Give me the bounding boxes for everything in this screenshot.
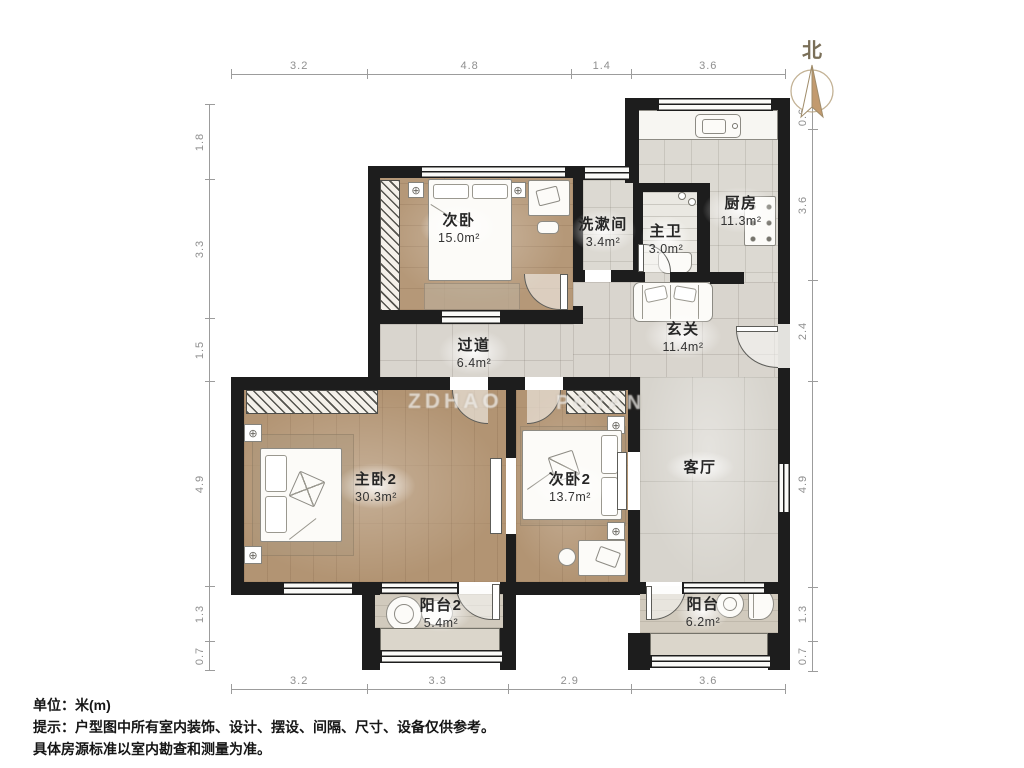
lamp-glyph: ⊕	[611, 525, 620, 538]
wall-segment	[368, 166, 380, 382]
room-label-master-bath: 主卫 3.0m²	[641, 216, 691, 260]
dim-label: 3.2	[290, 675, 308, 687]
room-name: 主卫	[649, 220, 683, 241]
door-leaf	[560, 274, 568, 310]
bedroom2-window	[420, 166, 567, 178]
wall-segment	[573, 270, 585, 282]
north-indicator: 北	[786, 34, 838, 125]
dim-segment: 1.4	[572, 61, 632, 75]
entry-door-leaf	[736, 326, 778, 332]
wall-segment	[500, 582, 516, 594]
dim-segment: 1.3	[812, 587, 824, 642]
dim-label: 3.6	[699, 60, 717, 72]
dim-label: 0.7	[194, 647, 206, 665]
balcony-window	[650, 655, 772, 668]
kitchen-window	[657, 98, 773, 111]
entry-door-gap	[778, 324, 790, 368]
watermark-text: POYAN	[556, 392, 645, 415]
chair-icon	[558, 548, 576, 566]
dim-segment: 3.3	[367, 676, 508, 690]
room-name: 过道	[457, 334, 491, 355]
wall-segment	[762, 582, 790, 594]
dim-label: 3.3	[429, 675, 447, 687]
dim-segment: 4.8	[367, 61, 572, 75]
laptop-icon	[595, 546, 621, 569]
room-label-kitchen: 厨房 11.3m²	[703, 187, 780, 233]
pillow-icon	[265, 455, 287, 492]
nightstand-lamp-icon: ⊕	[510, 182, 526, 198]
wall-segment	[573, 306, 583, 324]
kitchen-sink-icon	[695, 114, 741, 138]
wall-segment	[498, 310, 573, 324]
wall-segment	[362, 628, 380, 670]
dim-segment: 0.7	[812, 642, 824, 671]
stool-icon	[537, 221, 559, 234]
watermark-text: ZDHAO	[408, 390, 503, 414]
wall-segment	[633, 272, 645, 282]
room-name: 阳台	[686, 593, 720, 614]
wall-segment	[670, 272, 710, 282]
door-leaf	[646, 586, 652, 620]
wardrobe-icon	[380, 180, 400, 312]
floor-plan-page: ⊕ ⊕ ⊕ ⊕ ⊕ ⊕	[0, 0, 1024, 768]
balcony-parapet	[650, 633, 768, 657]
disclaimer-line1: 提示：户型图中所有室内装饰、设计、摆设、间隔、尺寸、设备仅供参考。	[33, 716, 495, 738]
dim-segment: 2.4	[812, 280, 824, 381]
room-area: 13.7m²	[549, 490, 592, 504]
room-name: 玄关	[663, 318, 704, 339]
room-label-master-bedroom: 主卧2 30.3m²	[337, 463, 416, 509]
room-area: 30.3m²	[355, 490, 398, 504]
room-name: 次卧	[438, 209, 480, 230]
dim-segment: 3.2	[231, 676, 367, 690]
rug-icon	[424, 283, 520, 310]
wall-segment	[643, 183, 697, 192]
dim-label: 3.3	[194, 240, 206, 258]
room-label-entry: 玄关 11.4m²	[645, 313, 722, 359]
room-area: 6.4m²	[457, 356, 491, 370]
dim-label: 2.9	[561, 675, 579, 687]
dim-label: 1.4	[593, 60, 611, 72]
dimension-top: 3.2 4.8 1.4 3.6	[231, 61, 785, 75]
room-label-hallway: 过道 6.4m²	[439, 329, 509, 375]
wall-segment	[500, 628, 516, 670]
master-bedroom-window	[282, 582, 354, 595]
wall-segment	[710, 272, 744, 284]
sofa-cushion	[644, 285, 668, 303]
door-leaf	[490, 458, 502, 534]
lamp-glyph: ⊕	[248, 427, 257, 440]
dim-segment: 2.9	[508, 676, 632, 690]
hallway-floor-2	[573, 282, 630, 377]
room-area: 6.2m²	[686, 615, 720, 629]
dim-label: 3.6	[797, 196, 809, 214]
dimension-left: 1.8 3.3 1.5 4.9 1.3 0.7	[209, 104, 221, 671]
dim-label: 1.5	[194, 341, 206, 359]
dim-segment: 3.6	[632, 676, 785, 690]
wardrobe-icon	[246, 390, 378, 414]
room-name: 阳台2	[420, 594, 463, 615]
nightstand-lamp-icon: ⊕	[244, 546, 262, 564]
wall-segment	[778, 290, 790, 324]
dimension-bottom: 3.2 3.3 2.9 3.6	[231, 676, 785, 690]
pillow-icon	[265, 496, 287, 533]
faucet-icon	[678, 192, 686, 200]
room-area: 11.3m²	[721, 214, 762, 228]
wall-segment	[778, 510, 790, 582]
dim-label: 4.9	[797, 475, 809, 493]
room-name: 厨房	[721, 192, 762, 213]
lamp-glyph: ⊕	[411, 184, 420, 197]
dim-label: 2.4	[797, 322, 809, 340]
room-area: 5.4m²	[420, 616, 463, 630]
room-area: 11.4m²	[663, 340, 704, 354]
wall-segment	[488, 377, 525, 390]
wall-segment	[628, 510, 640, 582]
wall-segment	[778, 594, 790, 633]
dim-segment: 4.9	[209, 381, 221, 587]
wall-segment	[778, 108, 790, 290]
room-label-bedroom3: 次卧2 13.7m²	[531, 463, 610, 509]
wall-segment	[362, 594, 375, 628]
wall-segment	[231, 377, 450, 390]
lamp-glyph: ⊕	[513, 184, 522, 197]
wall-segment	[625, 98, 657, 110]
bedroom2-sill-window	[440, 310, 502, 324]
dim-label: 0.7	[797, 647, 809, 665]
dim-label: 1.3	[797, 605, 809, 623]
room-name: 洗漱间	[578, 213, 628, 234]
faucet-icon	[688, 198, 696, 206]
wall-segment	[628, 582, 646, 594]
wall-segment	[611, 270, 633, 282]
room-area: 3.0m²	[649, 242, 683, 256]
washroom-window	[583, 166, 631, 180]
door-leaf	[617, 452, 627, 510]
room-area: 15.0m²	[438, 231, 480, 245]
desk-icon	[528, 180, 570, 216]
room-name: 次卧2	[549, 468, 592, 489]
wall-segment	[628, 633, 650, 670]
wall-segment	[231, 582, 282, 595]
wall-segment	[506, 390, 516, 458]
wall-segment	[362, 582, 380, 594]
north-label: 北	[786, 34, 838, 63]
blanket-fold	[289, 518, 316, 540]
nightstand-lamp-icon: ⊕	[408, 182, 424, 198]
compass-icon	[786, 63, 838, 125]
dim-segment: 3.6	[632, 61, 785, 75]
pillow-icon	[433, 184, 469, 199]
lamp-glyph: ⊕	[248, 549, 257, 562]
wall-segment	[231, 377, 244, 595]
wall-segment	[778, 368, 790, 462]
dim-label: 1.8	[194, 133, 206, 151]
sink-basin	[702, 119, 726, 134]
dim-segment: 3.2	[231, 61, 367, 75]
dim-segment: 1.5	[209, 318, 221, 381]
unit-note: 单位：米(m)	[33, 694, 495, 716]
room-label-bedroom2: 次卧 15.0m²	[420, 204, 498, 250]
laptop-icon	[535, 186, 560, 207]
bed-icon	[260, 448, 342, 542]
disclaimer-line2: 具体房源标准以室内勘查和测量为准。	[33, 738, 495, 760]
dimension-right: 0.6 3.6 2.4 4.9 1.3 0.7	[812, 104, 824, 671]
wall-segment	[506, 582, 640, 595]
room-label-living: 客厅	[665, 451, 734, 483]
dim-label: 3.2	[290, 60, 308, 72]
bed-throw	[289, 471, 326, 508]
room-name: 客厅	[683, 456, 716, 477]
dim-segment: 3.6	[812, 129, 824, 280]
dim-label: 3.6	[699, 675, 717, 687]
dim-segment: 1.8	[209, 104, 221, 180]
faucet-icon	[732, 123, 738, 129]
dim-segment: 4.9	[812, 381, 824, 587]
dim-label: 4.9	[194, 475, 206, 493]
dim-segment: 0.7	[209, 642, 221, 671]
desk-icon	[578, 540, 626, 576]
footer-notes: 单位：米(m) 提示：户型图中所有室内装饰、设计、摆设、间隔、尺寸、设备仅供参考…	[33, 694, 495, 760]
nightstand-lamp-icon: ⊕	[244, 424, 262, 442]
room-name: 主卧2	[355, 468, 398, 489]
room-label-washroom: 洗漱间 3.4m²	[570, 209, 636, 253]
wall-segment	[506, 534, 516, 582]
dim-segment: 3.3	[209, 180, 221, 319]
living-window	[778, 462, 790, 514]
room-area: 3.4m²	[578, 235, 628, 249]
pillow-icon	[472, 184, 508, 199]
room-label-balcony: 阳台 6.2m²	[676, 591, 730, 631]
balcony2-window	[380, 650, 504, 663]
wall-segment	[503, 594, 516, 628]
dim-label: 1.3	[194, 605, 206, 623]
room-label-balcony2: 阳台2 5.4m²	[410, 592, 473, 632]
wall-segment	[368, 310, 440, 324]
sofa-cushion	[673, 285, 697, 303]
dim-label: 4.8	[460, 60, 478, 72]
door-leaf	[492, 584, 500, 620]
dim-segment: 1.3	[209, 587, 221, 642]
nightstand-lamp-icon: ⊕	[607, 522, 625, 540]
